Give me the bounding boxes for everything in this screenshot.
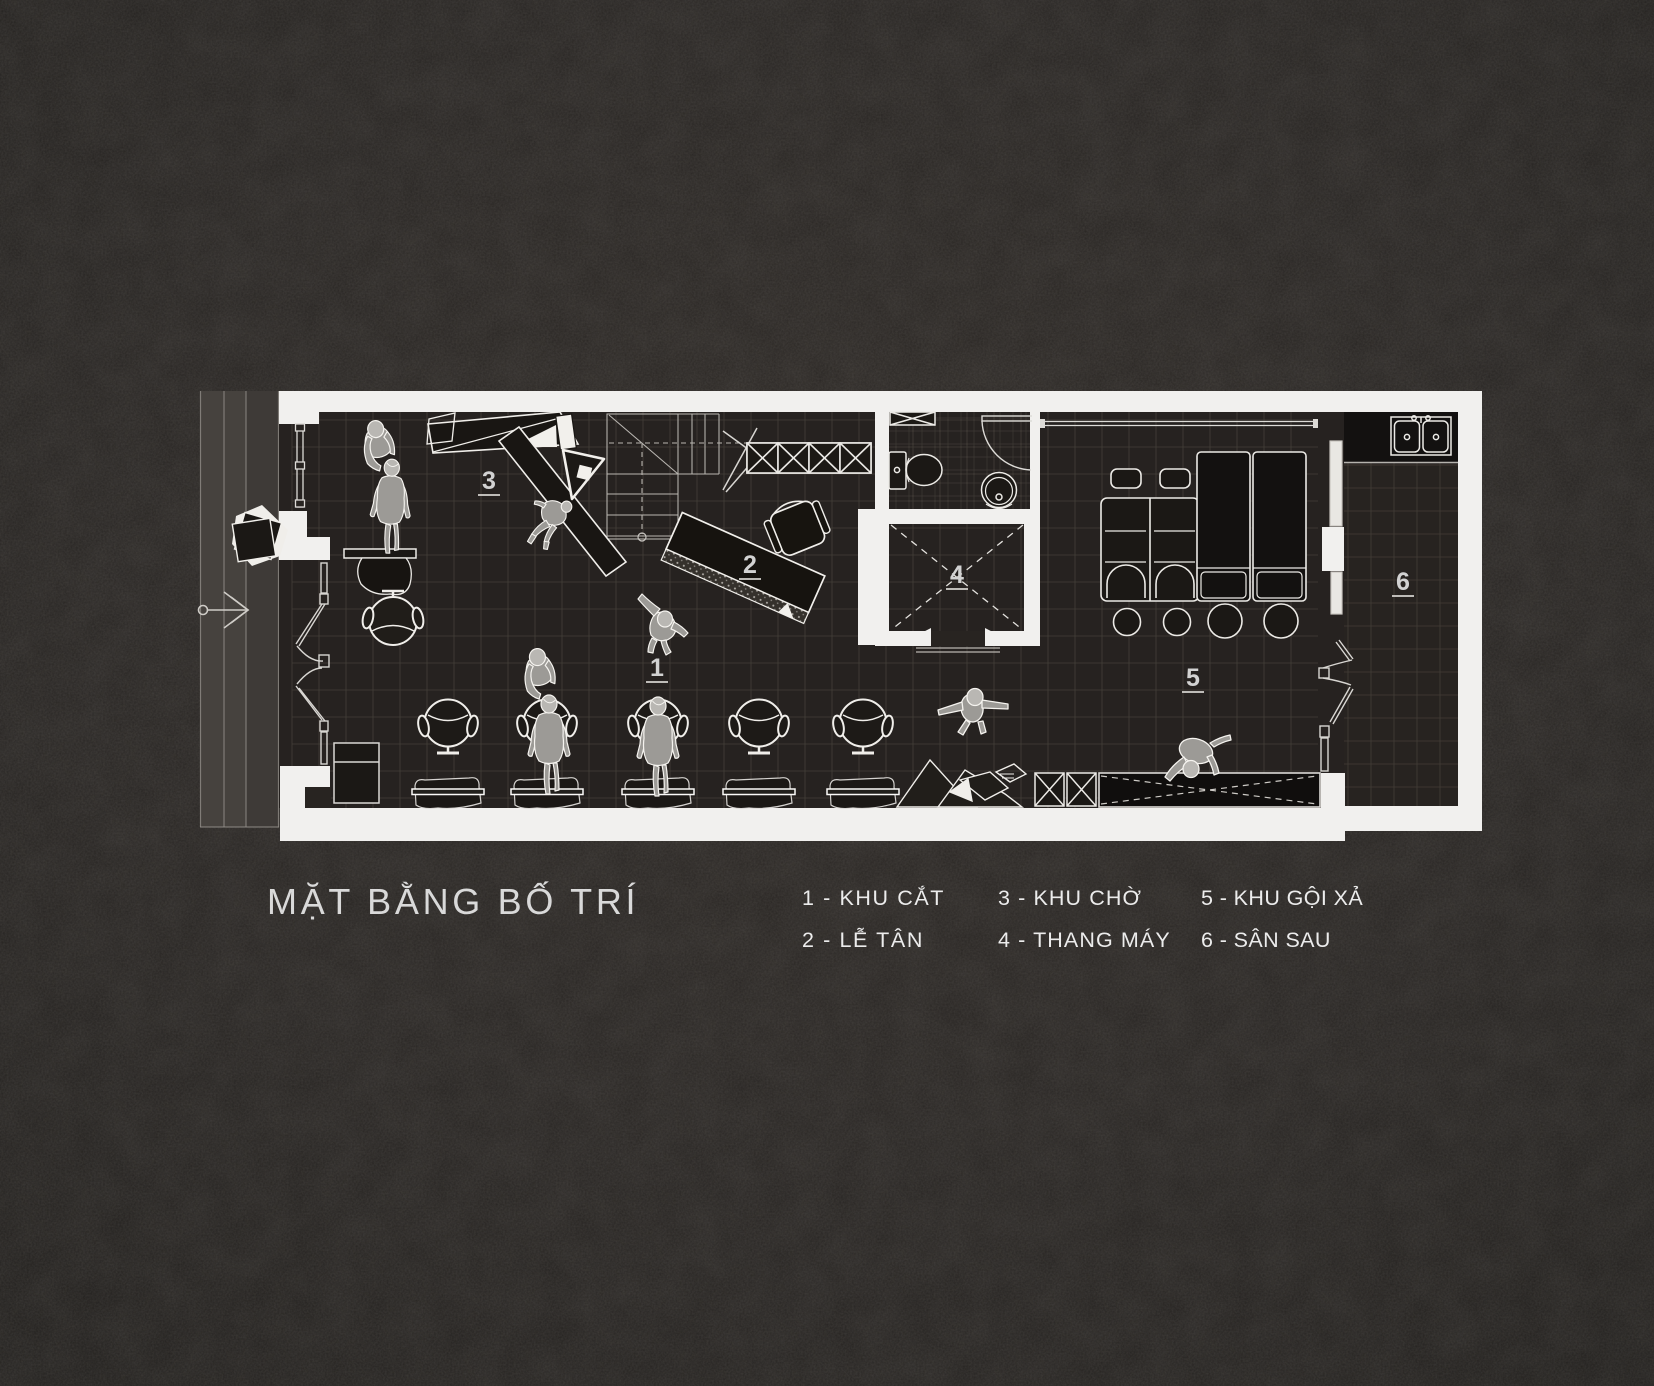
svg-text:5: 5 <box>1186 664 1200 692</box>
svg-text:2: 2 <box>743 551 757 579</box>
svg-text:1 - KHU CẮT: 1 - KHU CẮT <box>802 885 945 910</box>
svg-text:3 - KHU CHỜ: 3 - KHU CHỜ <box>998 885 1142 910</box>
svg-text:6: 6 <box>1396 568 1410 596</box>
svg-text:1: 1 <box>650 654 664 682</box>
svg-text:4: 4 <box>950 561 964 589</box>
svg-text:MẶT BẰNG BỐ TRÍ: MẶT BẰNG BỐ TRÍ <box>267 880 639 922</box>
svg-text:5 - KHU GỘI XẢ: 5 - KHU GỘI XẢ <box>1201 885 1363 910</box>
svg-text:4 - THANG MÁY: 4 - THANG MÁY <box>998 927 1171 952</box>
svg-text:2 - LỄ TÂN: 2 - LỄ TÂN <box>802 926 924 952</box>
svg-text:6 - SÂN SAU: 6 - SÂN SAU <box>1201 927 1331 952</box>
svg-text:3: 3 <box>482 467 496 495</box>
